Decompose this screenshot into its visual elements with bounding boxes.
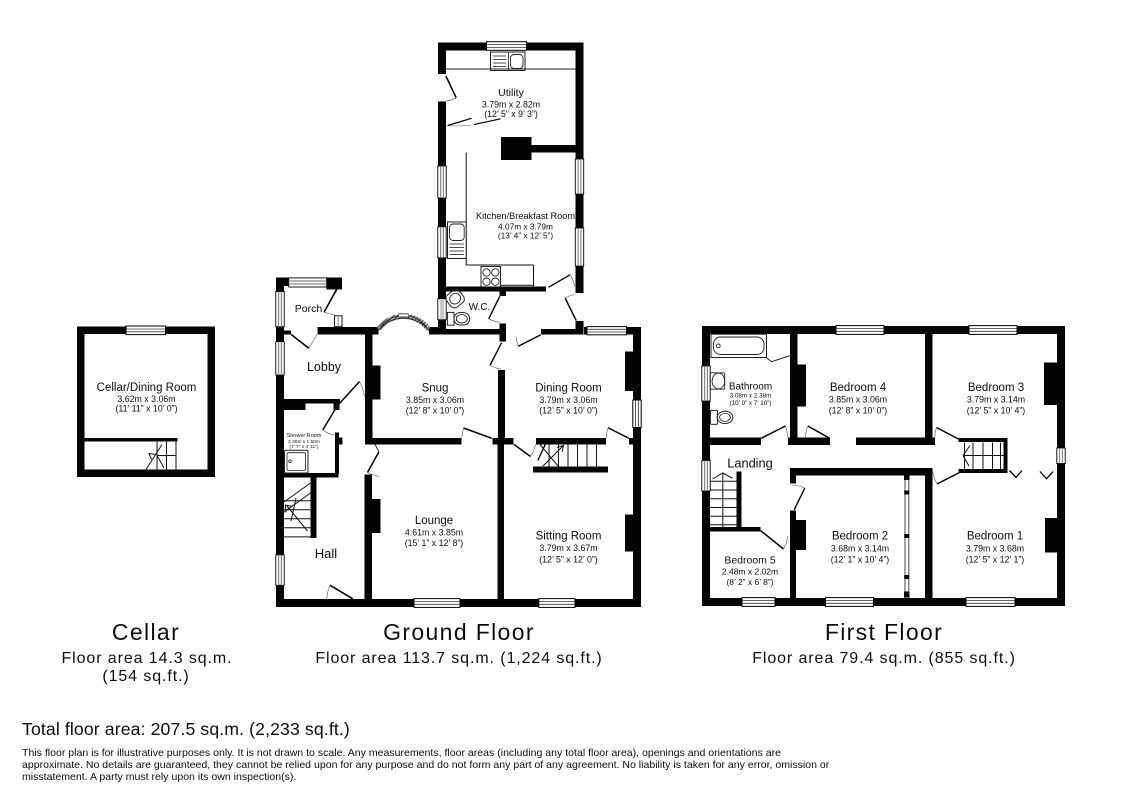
svg-text:(10’ 0” x 7’ 10”): (10’ 0” x 7’ 10”) <box>730 400 772 407</box>
svg-text:4.61m x 3.85m: 4.61m x 3.85m <box>405 528 463 538</box>
svg-text:Hall: Hall <box>315 546 338 561</box>
svg-text:3.79m x 3.06m: 3.79m x 3.06m <box>539 395 597 405</box>
svg-text:Total floor area: 207.5 sq.m.: Total floor area: 207.5 sq.m. (2,233 sq.… <box>22 719 350 739</box>
svg-text:Bedroom 4: Bedroom 4 <box>830 382 887 394</box>
svg-text:Ground Floor: Ground Floor <box>383 619 535 645</box>
svg-text:3.79m x 3.68m: 3.79m x 3.68m <box>966 544 1024 554</box>
svg-text:Landing: Landing <box>727 456 773 471</box>
svg-text:Lobby: Lobby <box>307 360 342 374</box>
svg-text:Bedroom 2: Bedroom 2 <box>832 531 888 543</box>
svg-text:Bedroom 1: Bedroom 1 <box>967 531 1023 543</box>
svg-text:3.79m x 3.67m: 3.79m x 3.67m <box>539 543 597 553</box>
svg-text:2.48m x 2.02m: 2.48m x 2.02m <box>722 567 778 577</box>
svg-text:(12’ 8” x 10’ 0”): (12’ 8” x 10’ 0”) <box>829 406 888 416</box>
svg-text:2.30m x 1.50m: 2.30m x 1.50m <box>288 439 320 445</box>
svg-text:Utility: Utility <box>498 87 524 99</box>
svg-text:(12’ 5” x 12’ 1”): (12’ 5” x 12’ 1”) <box>966 555 1025 565</box>
svg-text:Lounge: Lounge <box>415 515 453 527</box>
svg-text:(11’ 11” x 10’ 0”): (11’ 11” x 10’ 0”) <box>115 404 177 414</box>
svg-text:(8’ 2” x 6’ 8”): (8’ 2” x 6’ 8”) <box>726 577 773 587</box>
svg-text:(13’ 4” x 12’ 5”): (13’ 4” x 12’ 5”) <box>498 231 553 241</box>
svg-text:Floor area 14.3 sq.m.: Floor area 14.3 sq.m. <box>62 650 233 667</box>
svg-text:(7’ 7” x 4’ 11”): (7’ 7” x 4’ 11”) <box>290 444 319 450</box>
svg-text:3.79m x 3.14m: 3.79m x 3.14m <box>967 395 1025 405</box>
svg-text:approximate. No details are gu: approximate. No details are guaranteed, … <box>22 759 830 771</box>
svg-text:Cellar/Dining Room: Cellar/Dining Room <box>97 382 197 394</box>
svg-text:(12’ 5” x 9’ 3”): (12’ 5” x 9’ 3”) <box>484 109 538 119</box>
svg-text:Bathroom: Bathroom <box>729 382 772 393</box>
svg-text:W.C.: W.C. <box>469 302 491 313</box>
svg-text:Floor area 113.7 sq.m. (1,224: Floor area 113.7 sq.m. (1,224 sq.ft.) <box>315 650 602 667</box>
svg-text:3.62m x 3.06m: 3.62m x 3.06m <box>117 394 175 404</box>
svg-text:Kitchen/Breakfast Room: Kitchen/Breakfast Room <box>476 211 575 221</box>
svg-text:(12’ 1” x 10’ 4”): (12’ 1” x 10’ 4”) <box>831 555 890 565</box>
svg-text:Porch: Porch <box>295 303 323 315</box>
svg-text:misstatement. A party must rel: misstatement. A party must rely upon its… <box>22 771 296 783</box>
svg-text:3.08m x 2.38m: 3.08m x 2.38m <box>730 393 772 400</box>
svg-text:Floor area 79.4 sq.m. (855 sq.: Floor area 79.4 sq.m. (855 sq.ft.) <box>752 650 1016 667</box>
svg-text:(12’ 5” x 10’ 4”): (12’ 5” x 10’ 4”) <box>967 406 1026 416</box>
svg-text:Snug: Snug <box>422 383 449 395</box>
svg-text:(12’ 8” x 10’ 0”): (12’ 8” x 10’ 0”) <box>406 406 465 416</box>
svg-text:(12’ 5” x 10’ 0”): (12’ 5” x 10’ 0”) <box>539 406 598 416</box>
svg-text:3.79m x 2.82m: 3.79m x 2.82m <box>482 100 540 110</box>
svg-text:Shower Room: Shower Room <box>287 433 322 439</box>
svg-text:3.85m x 3.06m: 3.85m x 3.06m <box>406 395 464 405</box>
svg-text:Cellar: Cellar <box>112 619 180 645</box>
svg-text:This floor plan is for illustr: This floor plan is for illustrative purp… <box>22 747 781 759</box>
svg-text:Sitting Room: Sitting Room <box>536 531 602 543</box>
svg-text:(154 sq.ft.): (154 sq.ft.) <box>102 668 189 685</box>
svg-text:First Floor: First Floor <box>825 619 943 645</box>
svg-text:Bedroom 5: Bedroom 5 <box>724 555 776 567</box>
svg-text:3.85m x 3.06m: 3.85m x 3.06m <box>829 395 887 405</box>
svg-text:Dining Room: Dining Room <box>535 383 601 395</box>
svg-text:Bedroom 3: Bedroom 3 <box>968 382 1024 394</box>
svg-text:3.68m x 3.14m: 3.68m x 3.14m <box>831 544 889 554</box>
svg-text:(15’ 1” x 12’ 8”): (15’ 1” x 12’ 8”) <box>405 538 464 548</box>
svg-text:(12’ 5” x 12’ 0”): (12’ 5” x 12’ 0”) <box>539 555 598 565</box>
